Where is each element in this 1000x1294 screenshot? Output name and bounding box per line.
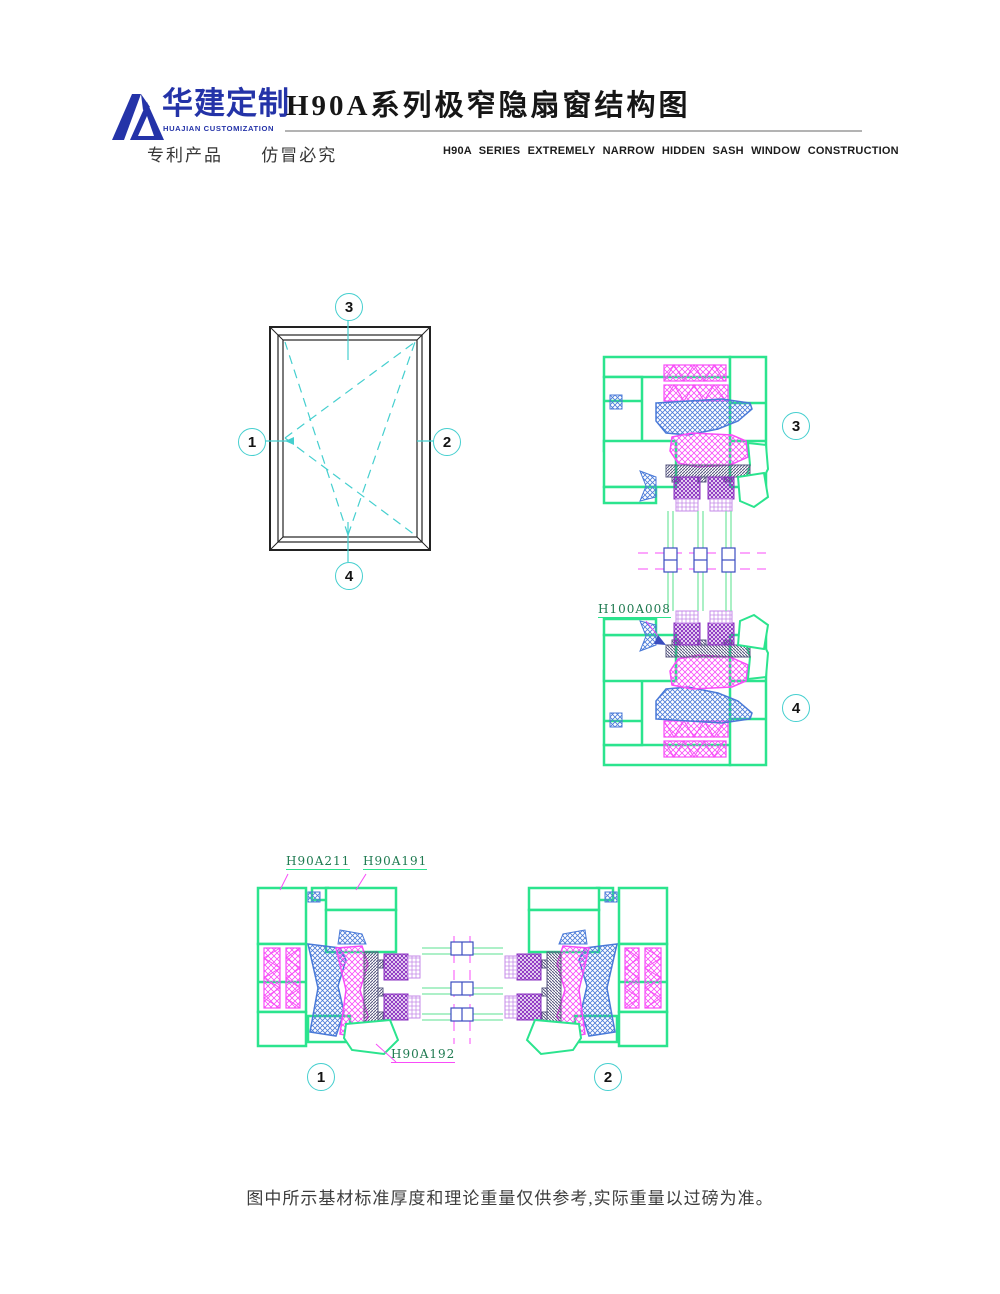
head-frame-assembly <box>604 357 768 511</box>
elevation-callout-3: 3 <box>335 293 363 321</box>
patent-note: 专利产品 仿冒必究 <box>147 141 337 166</box>
glazing-blocks-dark <box>384 954 408 1020</box>
huajian-logo-icon <box>110 88 166 142</box>
elevation-callout-4: 4 <box>335 562 363 590</box>
vertical-section-drawing <box>580 345 815 775</box>
footer-disclaimer: 图中所示基材标准厚度和理论重量仅供参考,实际重量以过磅为准。 <box>0 1184 1000 1209</box>
elevation-callout-2: 2 <box>433 428 461 456</box>
brand-name-cn: 华建定制 <box>162 88 290 119</box>
page-title-en: H90A SERIES EXTREMELY NARROW HIDDEN SASH… <box>443 145 899 157</box>
bead-clip-green <box>738 473 768 507</box>
sash-seal-magenta <box>670 433 748 467</box>
callout-number: 4 <box>792 700 800 717</box>
hardware-clip-blue <box>308 892 320 902</box>
leader-arrowhead <box>285 437 294 445</box>
callout-number: 2 <box>443 434 451 451</box>
callout-number: 4 <box>345 568 353 585</box>
part-label-H90A191: H90A191 <box>363 855 427 870</box>
page-title: H90A系列极窄隐扇窗结构图 <box>286 92 691 121</box>
vertical-section-callout-4: 4 <box>782 694 810 722</box>
glazing-blocks-light <box>676 499 732 511</box>
part-label-H100A008: H100A008 <box>598 603 671 618</box>
patent-note-left: 专利产品 <box>147 146 223 165</box>
sill-frame-assembly <box>604 611 768 765</box>
patent-note-right: 仿冒必究 <box>261 146 337 165</box>
callout-number: 3 <box>792 418 800 435</box>
glass-break-symbol <box>451 936 473 1044</box>
left-jamb-assembly <box>258 888 420 1054</box>
horizontal-section-callout-2: 2 <box>594 1063 622 1091</box>
glazing-blocks-light <box>408 956 420 1018</box>
drawing-page: 华建定制 HUAJIAN CUSTOMIZATION H90A系列极窄隐扇窗结构… <box>0 0 1000 1294</box>
part-label-H90A211: H90A211 <box>286 855 350 870</box>
elevation-callout-1: 1 <box>238 428 266 456</box>
horizontal-section-callout-1: 1 <box>307 1063 335 1091</box>
hardware-clip-blue <box>610 395 622 409</box>
vertical-section-callout-3: 3 <box>782 412 810 440</box>
glass-break-symbol <box>638 548 766 572</box>
callout-number: 1 <box>248 434 256 451</box>
tilt-turn-symbol <box>285 342 415 535</box>
callout-number: 2 <box>604 1069 612 1086</box>
thermal-break-bars <box>664 365 728 401</box>
callout-number: 1 <box>317 1069 325 1086</box>
part-label-H90A192: H90A192 <box>391 1048 455 1063</box>
right-jamb-assembly <box>505 888 667 1054</box>
horizontal-section-drawing <box>250 848 680 1098</box>
title-underline-rule <box>285 130 862 132</box>
callout-number: 3 <box>345 299 353 316</box>
brand-name-en: HUAJIAN CUSTOMIZATION <box>163 124 274 133</box>
glazing-bead-green <box>344 1020 398 1054</box>
